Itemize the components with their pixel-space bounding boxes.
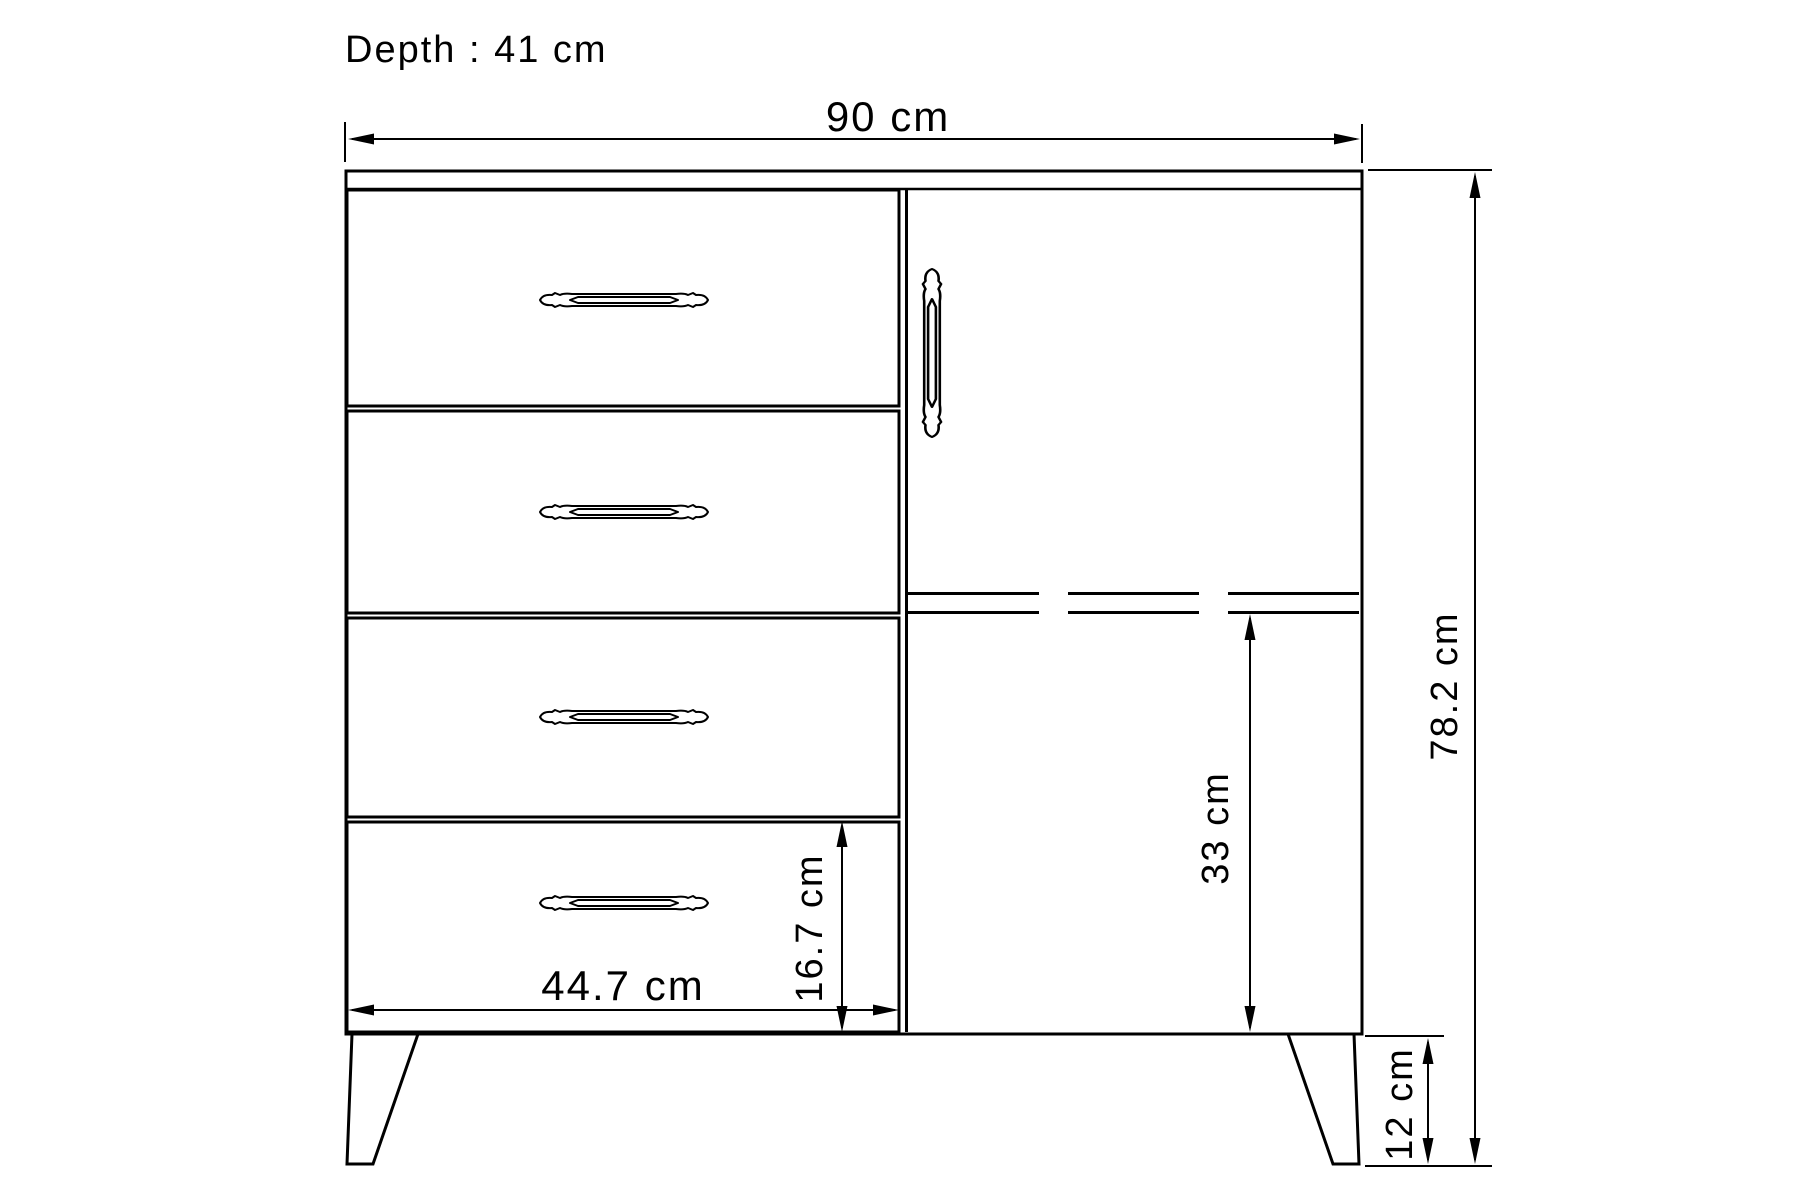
arrowhead <box>1423 1138 1434 1164</box>
arrowhead <box>1470 172 1481 198</box>
drawer-4-handle <box>540 896 708 910</box>
drawer-2-handle <box>540 505 708 519</box>
drawer-1-handle <box>540 293 708 307</box>
dim-height-label: 78.2 cm <box>1424 611 1466 760</box>
dim-width-label: 90 cm <box>826 93 950 140</box>
arrowhead <box>348 134 374 145</box>
dimension-drawing: Depth : 41 cm 90 cm 78.2 cm 33 cm 16.7 c… <box>0 0 1800 1200</box>
arrowhead <box>1470 1138 1481 1164</box>
arrowhead <box>1334 134 1360 145</box>
leg-right <box>1288 1034 1359 1164</box>
depth-label: Depth : 41 cm <box>345 29 608 71</box>
dim-drawer-width-label: 44.7 cm <box>541 962 704 1009</box>
dim-leg-label: 12 cm <box>1379 1047 1421 1160</box>
leg-left <box>347 1034 418 1164</box>
arrowhead <box>1423 1038 1434 1064</box>
dim-drawer-height-label: 16.7 cm <box>789 853 831 1002</box>
drawing-canvas: Depth : 41 cm 90 cm 78.2 cm 33 cm 16.7 c… <box>0 0 1800 1200</box>
door-handle <box>923 269 941 437</box>
drawer-3-handle <box>540 710 708 724</box>
cabinet <box>346 171 1362 1164</box>
dim-compartment-label: 33 cm <box>1195 771 1237 884</box>
